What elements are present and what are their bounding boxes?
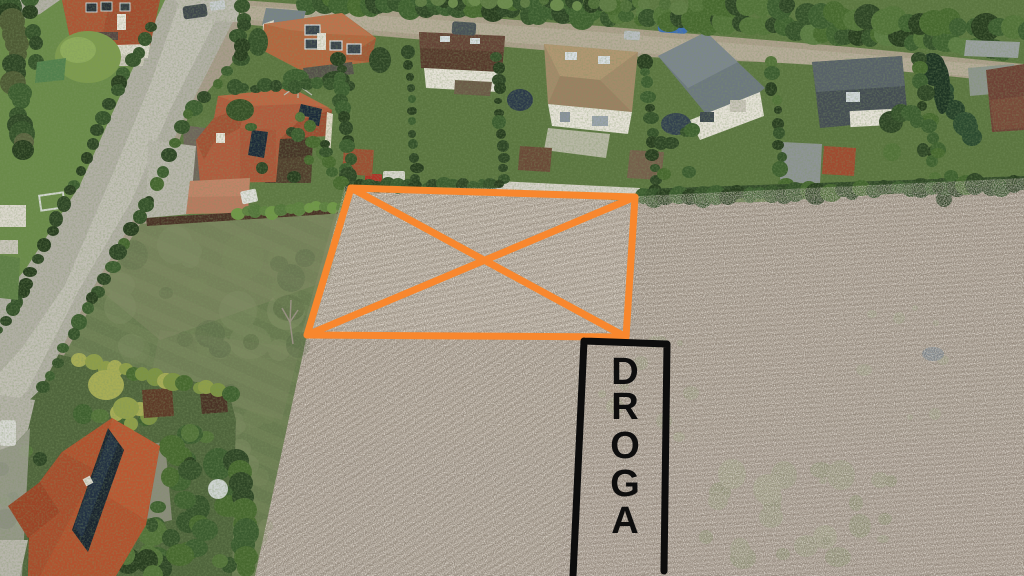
svg-text:R: R (611, 386, 638, 428)
svg-text:A: A (611, 500, 638, 542)
svg-text:O: O (610, 425, 640, 467)
svg-text:G: G (610, 463, 640, 505)
